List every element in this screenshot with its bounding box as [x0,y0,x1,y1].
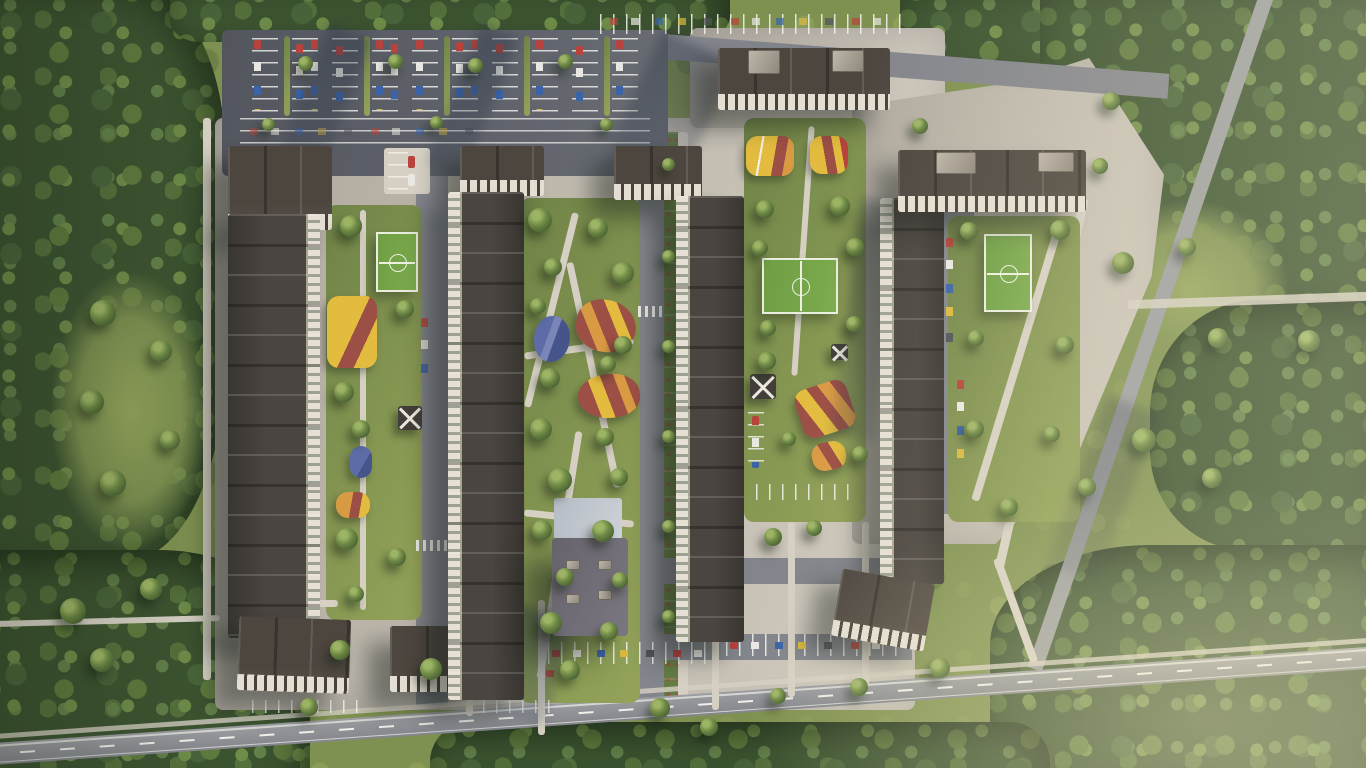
boulevard-tree [662,250,675,263]
tree [592,520,614,542]
building-east-north-wing [898,150,1086,212]
building-b-slab [448,192,524,700]
tree [540,368,560,388]
tree [340,215,362,237]
tree [336,528,358,550]
meadow-tree [60,598,86,624]
meadow-tree [1298,330,1320,352]
tree [614,336,632,354]
playground-blue-courtyard-1 [350,446,372,478]
meadow-tree [80,390,104,414]
parked-cars-column [616,40,623,106]
meadow-tree [1208,328,1228,348]
playground-north-right [810,136,848,174]
meadow-tree [770,688,786,704]
meadow-tree [1202,468,1222,488]
tree [600,356,616,372]
playground-north-left [746,136,794,176]
red-car [408,156,415,168]
building-north-slab [718,48,890,110]
grass-clearing-left [50,270,210,550]
tree [348,586,364,602]
parking-tree [468,58,483,73]
football-field-courtyard-2 [762,258,838,314]
south-path [788,522,795,697]
meadow-tree [100,470,126,496]
tree [760,320,776,336]
meadow-tree [1112,252,1134,274]
meadow-tree [1132,428,1156,452]
school-roof-unit [566,594,580,604]
tree [968,330,984,346]
boulevard-tree [662,158,675,171]
tree [752,240,768,256]
pavilion-x-roof-courtyard-1 [398,406,422,430]
parked-cars-column [376,40,383,110]
courtyard-2-stalls-lower [756,484,856,500]
tree [530,418,552,440]
aerial-render-canvas [0,0,1366,768]
parking-tree [558,54,573,69]
boulevard-roadway [638,128,664,706]
tree [1056,336,1074,354]
tree [1000,498,1018,516]
meadow-tree [1078,478,1096,496]
tree [560,660,580,680]
parking-tree [388,54,403,69]
mini-lot-stalls [388,152,408,192]
tree [846,316,862,332]
tree [852,446,868,462]
tree [352,420,370,438]
crosswalk-boulevard [638,306,664,317]
pavilion-x-roof-large [750,374,776,399]
tree [846,238,864,256]
plaza-tree [1102,92,1120,110]
meadow-tree [150,340,172,362]
tree [764,528,782,546]
forest-bottom-strip [430,722,1050,768]
parking-tree [298,56,313,71]
tree [758,352,776,370]
meadow-tree [90,300,116,326]
tree [806,520,822,536]
roof-unit [936,152,976,174]
meadow-tree [420,658,442,680]
white-car [408,174,415,186]
roof-unit [1038,152,1074,172]
parked-cars-column [576,46,583,106]
boulevard-tree [662,520,675,533]
boulevard-tree [662,340,675,353]
building-d-east-slab [880,198,944,584]
tree [756,200,774,218]
forest-right-mid [1150,300,1366,550]
roof-unit [832,50,864,72]
crosswalk-west-street [416,540,448,551]
building-b-north-cap [460,146,544,196]
football-field-courtyard-1 [376,232,418,292]
tree [528,208,552,232]
parked-cars-column [416,40,423,110]
courtyard-1-path [360,210,366,610]
boulevard-tree [662,430,675,443]
tree [1050,220,1070,240]
meadow-tree [160,430,180,450]
building-c-slab [676,196,744,642]
parked-cars-column [536,40,543,110]
parking-tree [262,118,275,131]
meadow-tree [140,578,162,600]
tree [596,428,614,446]
parking-hedge [284,36,290,116]
tree [610,468,628,486]
meadow-tree [330,640,350,660]
playground-yellow-courtyard-1 [327,296,377,368]
street-cars-east-column [946,238,953,358]
tree [588,218,608,238]
plaza-tree [1092,158,1108,174]
football-field-east [984,234,1032,312]
parking-tree [430,116,443,129]
meadow-tree [850,678,868,696]
tree [556,568,574,586]
tree [830,196,850,216]
street-cars-top [610,18,890,25]
building-c-north-cap [614,146,702,200]
tree [612,572,628,588]
tree [396,300,414,318]
boulevard-tree [662,610,675,623]
tree [782,432,796,446]
plaza-tree [912,118,928,134]
tree [960,222,978,240]
tree [530,298,546,314]
tree [548,468,572,492]
meadow-tree [700,718,718,736]
south-cars-1 [552,650,712,657]
parking-hedge [524,36,530,116]
street-cars-west [421,318,428,380]
parking-hedge [604,36,610,116]
tree [1044,426,1060,442]
tree [388,548,406,566]
school-roof-unit [598,590,612,600]
school-roof-unit [598,560,612,570]
building-a-west-slab [228,214,320,638]
tree [600,622,618,640]
tree [334,382,354,402]
parked-cars-column [254,40,261,110]
tree [532,520,552,540]
playground-orange-courtyard-1 [336,492,370,518]
tree [540,612,562,634]
meadow-tree [1178,238,1196,256]
meadow-tree [300,698,318,716]
tree [612,262,634,284]
meadow-tree [90,648,114,672]
tree [544,258,562,276]
meadow-tree [930,658,950,678]
meadow-tree [650,698,670,718]
street-cars-east-column2 [957,380,964,470]
roof-unit [748,50,780,74]
west-sidewalk [203,118,211,680]
tree [966,420,984,438]
courtyard-2-cars [752,416,759,468]
parking-tree [600,118,613,131]
